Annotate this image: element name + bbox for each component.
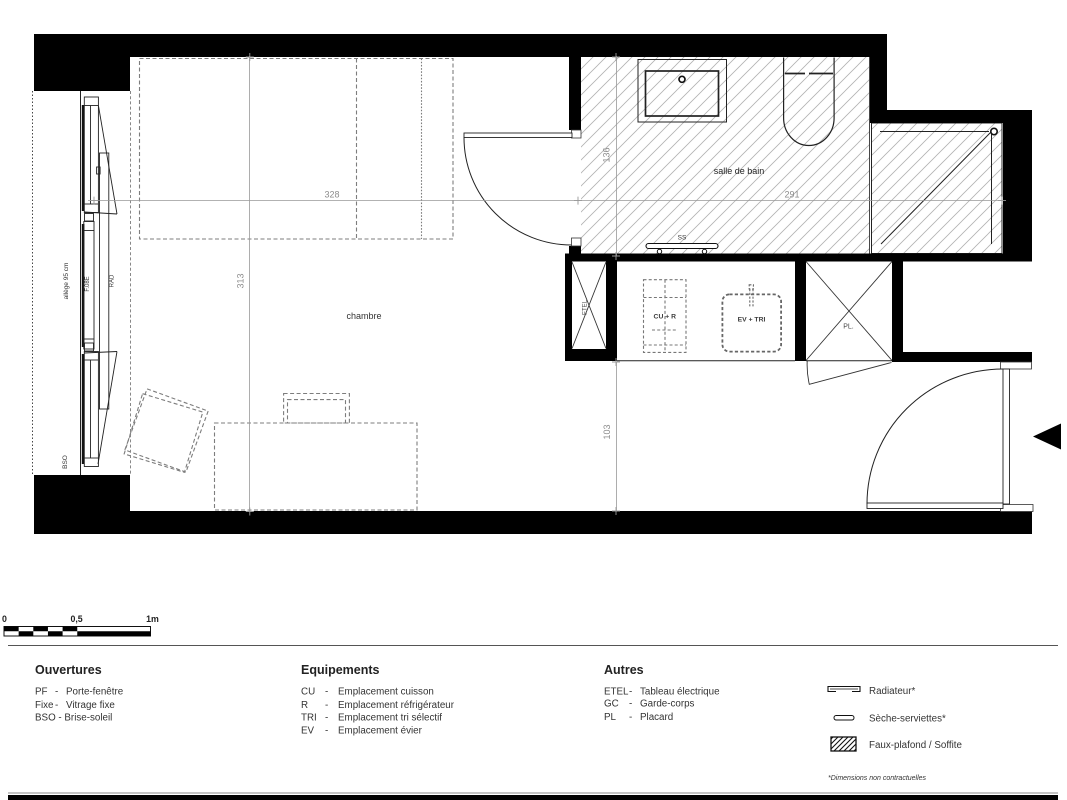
svg-text:Autres: Autres bbox=[604, 663, 644, 677]
svg-text:Garde-corps: Garde-corps bbox=[640, 699, 695, 710]
svg-text:313: 313 bbox=[236, 273, 246, 288]
svg-text:Emplacement cuisson: Emplacement cuisson bbox=[338, 687, 434, 698]
svg-text:103: 103 bbox=[602, 424, 612, 439]
svg-text:TRI: TRI bbox=[301, 713, 317, 724]
svg-text:-: - bbox=[629, 687, 632, 698]
svg-text:CU: CU bbox=[301, 687, 315, 698]
svg-text:ETEL: ETEL bbox=[583, 299, 589, 315]
svg-text:RAD: RAD bbox=[110, 274, 116, 287]
svg-text:Radiateur*: Radiateur* bbox=[869, 686, 915, 697]
svg-text:136: 136 bbox=[602, 147, 612, 162]
svg-text:-: - bbox=[325, 700, 328, 711]
svg-text:-: - bbox=[55, 687, 58, 698]
svg-text:SS: SS bbox=[678, 235, 687, 242]
svg-text:R: R bbox=[301, 700, 308, 711]
svg-text:*Dimensions non contractuelles: *Dimensions non contractuelles bbox=[828, 775, 927, 782]
svg-text:BSO - Brise-soleil: BSO - Brise-soleil bbox=[35, 713, 112, 724]
svg-text:chambre: chambre bbox=[346, 311, 381, 321]
svg-text:-: - bbox=[325, 713, 328, 724]
svg-text:Vitrage fixe: Vitrage fixe bbox=[66, 700, 115, 711]
svg-text:Tableau électrique: Tableau électrique bbox=[640, 687, 720, 698]
svg-text:328: 328 bbox=[324, 190, 339, 200]
svg-text:1m: 1m bbox=[146, 614, 159, 624]
svg-text:-: - bbox=[325, 726, 328, 737]
svg-text:PF: PF bbox=[35, 687, 48, 698]
svg-text:Placard: Placard bbox=[640, 712, 673, 723]
svg-text:EV + TRI: EV + TRI bbox=[738, 317, 766, 324]
svg-text:Porte-fenêtre: Porte-fenêtre bbox=[66, 687, 124, 698]
svg-text:Emplacement réfrigérateur: Emplacement réfrigérateur bbox=[338, 700, 455, 711]
svg-text:0: 0 bbox=[2, 614, 7, 624]
svg-text:-: - bbox=[55, 700, 58, 711]
svg-text:Emplacement évier: Emplacement évier bbox=[338, 726, 423, 737]
svg-text:0,5: 0,5 bbox=[70, 614, 82, 624]
svg-text:Emplacement tri sélectif: Emplacement tri sélectif bbox=[338, 713, 442, 724]
svg-text:BSO: BSO bbox=[62, 455, 69, 469]
svg-text:PL.: PL. bbox=[843, 324, 854, 331]
svg-text:EV: EV bbox=[301, 726, 315, 737]
svg-text:291: 291 bbox=[784, 190, 799, 200]
svg-text:Ouvertures: Ouvertures bbox=[35, 663, 102, 677]
svg-text:GC: GC bbox=[604, 699, 619, 710]
svg-text:salle de bain: salle de bain bbox=[714, 166, 765, 176]
svg-text:F.08E: F.08E bbox=[85, 276, 91, 291]
svg-text:allège 95 cm: allège 95 cm bbox=[63, 263, 70, 300]
svg-text:Faux-plafond / Soffite: Faux-plafond / Soffite bbox=[869, 740, 962, 751]
svg-text:-: - bbox=[629, 712, 632, 723]
svg-text:-: - bbox=[325, 687, 328, 698]
svg-text:CU + R: CU + R bbox=[654, 313, 677, 320]
svg-text:PL: PL bbox=[604, 712, 617, 723]
svg-text:-: - bbox=[629, 699, 632, 710]
svg-text:ETEL: ETEL bbox=[604, 687, 629, 698]
svg-text:Sèche-serviettes*: Sèche-serviettes* bbox=[869, 714, 946, 725]
svg-text:Equipements: Equipements bbox=[301, 663, 380, 677]
svg-text:Fixe: Fixe bbox=[35, 700, 54, 711]
